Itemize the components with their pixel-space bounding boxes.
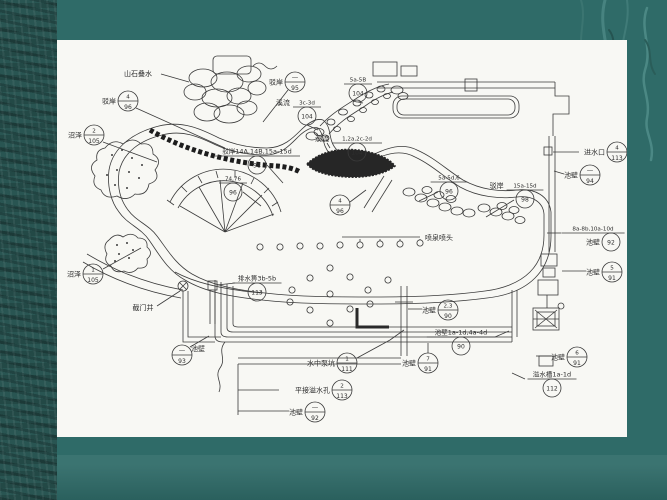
label-text: 92 — [311, 415, 319, 422]
callout-ref-5a5b-104: 5a-5B104 — [344, 78, 372, 104]
label-text: 113 — [611, 155, 623, 162]
label-text: 96 — [124, 104, 132, 111]
callout-chibi-5-91: 591池壁 — [562, 262, 622, 282]
callout-boan-x-95: —95驳岸 — [263, 72, 305, 122]
label-text: 98 — [253, 163, 261, 170]
label-text: 94 — [586, 178, 594, 185]
label-text: 15a-15d — [513, 184, 537, 190]
label-text: 2 — [92, 129, 96, 135]
right-structures — [512, 254, 564, 366]
label-text: 排水箅3b-5b — [238, 274, 276, 283]
label-text: 4 — [126, 95, 130, 101]
label-text: 溢水槽1a-1d — [533, 370, 571, 379]
plain-label-fountain-heads-label: 喷泉喷头 — [342, 233, 453, 242]
label-text: 驳岸 — [102, 98, 116, 106]
label-text: 驳岸14A,14B,15a-15d — [222, 148, 292, 156]
fountain-jet — [327, 265, 333, 271]
label-text: 8a-8b,10a-10d — [572, 227, 614, 233]
label-text: 91 — [424, 366, 432, 373]
label-text: — — [587, 167, 594, 175]
label-text: 104 — [301, 114, 313, 121]
label-text: 105 — [87, 277, 99, 284]
label-text: — — [312, 404, 319, 412]
label-text: 溪流 — [315, 134, 329, 143]
fountain-jet — [327, 320, 333, 326]
fountain-jet — [357, 242, 363, 248]
fountain-jets — [257, 240, 423, 326]
callout-jinshuikou-4-113: 4113进水口 — [553, 142, 627, 162]
fountain-jet — [307, 307, 313, 313]
label-text: 96 — [229, 190, 237, 197]
fountain-jet — [385, 277, 391, 283]
label-text: 96 — [445, 189, 453, 196]
label-text: 74,76 — [225, 177, 241, 183]
label-text: 113 — [336, 393, 348, 400]
label-text: 90 — [444, 313, 452, 320]
callout-bengkeng-1-111: 1111水中泵坑 — [307, 330, 404, 373]
label-text: 111 — [341, 366, 353, 373]
label-text: 5a-5B — [350, 78, 367, 84]
callout-ref-4-96: 496 — [330, 190, 366, 215]
fountain-jet — [317, 243, 323, 249]
fountain-jet — [307, 275, 313, 281]
label-text: 1 — [91, 268, 95, 274]
label-text: 98 — [521, 197, 529, 204]
label-text: 池壁 — [422, 306, 436, 315]
label-text: 池壁 — [551, 353, 565, 362]
label-text: 驳岸 — [269, 79, 283, 87]
label-text: 5a-5d,6 — [438, 176, 460, 182]
label-text: 112 — [546, 386, 558, 393]
label-text: 1,2a,2c-2d — [342, 137, 372, 143]
label-text: 1 — [345, 357, 349, 363]
callout-chibi-x-93: —93池壁 — [172, 336, 209, 365]
label-text: 95 — [291, 85, 299, 92]
label-text: 91 — [573, 360, 581, 367]
callout-chibi-8a10d-92: 8a-8b,10a-10d92池壁 — [547, 227, 625, 252]
label-text: 5 — [610, 266, 614, 272]
label-text: 91 — [608, 275, 616, 282]
label-text: 7 — [426, 357, 430, 363]
slide: { "slide": { "background_color": "#2f6b6… — [0, 0, 667, 500]
fountain-jet — [289, 287, 295, 293]
fountain-jet — [297, 243, 303, 249]
rock-cascade — [184, 56, 277, 123]
label-text: 池壁 — [564, 171, 578, 180]
label-text: 96 — [336, 208, 344, 215]
label-text: 2 — [340, 384, 344, 390]
fountain-jet — [277, 244, 283, 250]
label-text: 水中泵坑 — [307, 359, 335, 368]
callout-zhaoze-1-105: 1105沼泽 — [67, 248, 141, 284]
label-text: — — [292, 74, 299, 82]
fountain-jet — [347, 274, 353, 280]
callout-yishuicao-1a1d-112: 溢水槽1a-1d112 — [512, 370, 577, 398]
label-text: 平接溢水孔 — [295, 386, 330, 395]
fountain-jet — [347, 306, 353, 312]
callout-chibi-6-91: 691池壁 — [536, 347, 587, 367]
label-text: 104 — [351, 150, 363, 157]
label-text: 溪流 — [276, 98, 290, 107]
label-text: 池壁 — [289, 408, 303, 417]
label-text: 113 — [251, 290, 263, 297]
upper-walls — [373, 62, 569, 252]
plain-label-rock-cascade-label: 山石叠水 — [124, 69, 189, 82]
label-text: 驳岸 — [490, 182, 504, 190]
fountain-jet — [397, 241, 403, 247]
fountain-jet — [337, 242, 343, 248]
label-text: 3c-3d — [299, 101, 315, 107]
callout-chibi-x-92: —92池壁 — [238, 402, 325, 422]
drawing-panel: 山石叠水截门井喷泉喷头496驳岸2105沼泽1105沼泽—95驳岸5a-5B10… — [57, 40, 627, 437]
fountain-jet — [257, 244, 263, 250]
label-text: 90 — [457, 344, 465, 351]
fountain-jet — [365, 287, 371, 293]
label-text: 104 — [352, 91, 364, 98]
label-text: 喷泉喷头 — [425, 233, 453, 242]
plain-label-valve-well-label: 截门井 — [133, 291, 181, 312]
label-text: 截门井 — [133, 303, 154, 312]
label-text: 4 — [338, 199, 342, 205]
fountain-leader-ticks — [360, 239, 420, 242]
label-text: 池壁1a-1d,4a-4d — [435, 328, 488, 337]
label-text: 池壁 — [191, 344, 205, 353]
label-text: 92 — [607, 240, 615, 247]
label-text: 4 — [615, 146, 619, 152]
callout-xiliu-3c3d-104: 3c-3d104溪流 — [276, 98, 321, 130]
label-text: 沼泽 — [68, 131, 82, 140]
fountain-jet — [417, 240, 423, 246]
pipes — [178, 281, 401, 415]
label-text: 池壁 — [586, 238, 600, 247]
label-text: 105 — [88, 138, 100, 145]
slide-bottom-band — [57, 455, 667, 500]
callout-yishuikong-2-113: 2113平接溢水孔 — [238, 380, 352, 400]
label-text: 2,3 — [444, 304, 453, 310]
label-text: 池壁 — [586, 268, 600, 277]
label-text: 6 — [575, 351, 579, 357]
label-text: — — [179, 347, 186, 355]
label-text: 山石叠水 — [124, 69, 152, 78]
label-text: 进水口 — [584, 148, 605, 157]
label-text: 沼泽 — [67, 270, 81, 279]
label-text: 93 — [178, 358, 186, 365]
label-text: 池壁 — [402, 359, 416, 368]
slide-left-texture-strip — [0, 0, 57, 500]
fountain-jet — [377, 241, 383, 247]
callout-chibi-x-94: —94池壁 — [554, 165, 600, 185]
